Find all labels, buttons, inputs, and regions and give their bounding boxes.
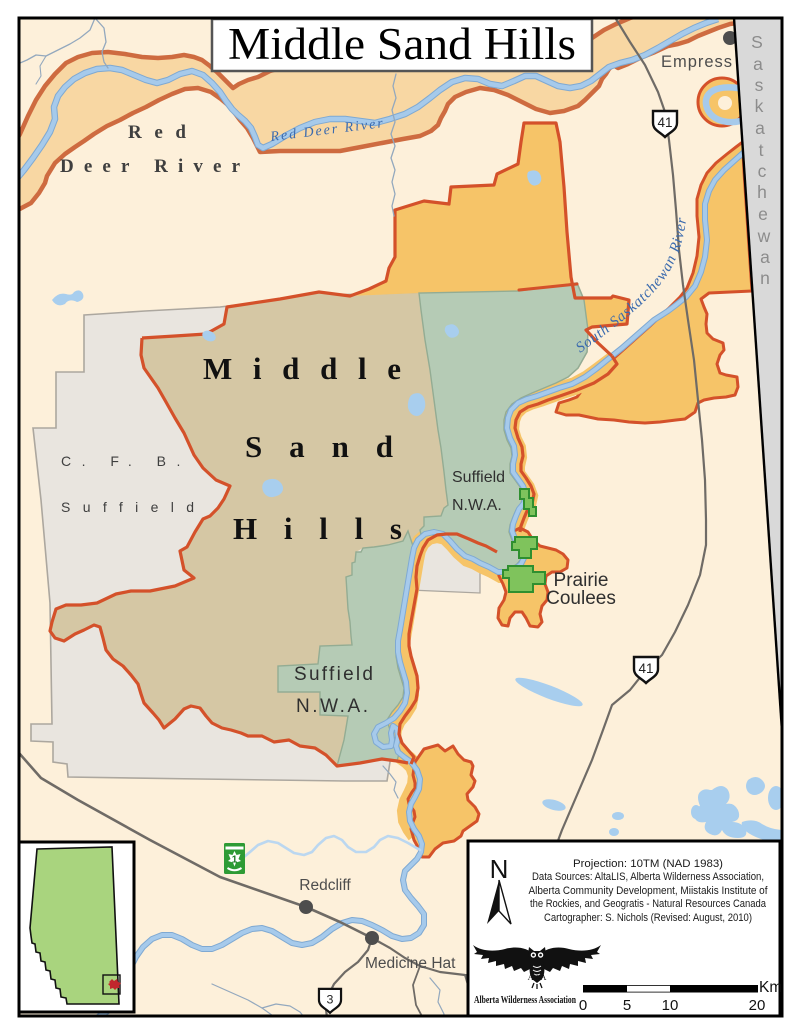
svg-text:the Rockies, and Geogratis - N: the Rockies, and Geogratis - Natural Res… xyxy=(530,898,767,910)
svg-text:Cartographer: S. Nichols (Revi: Cartographer: S. Nichols (Revised: Augus… xyxy=(544,912,752,924)
svg-text:Alberta Wilderness Association: Alberta Wilderness Association xyxy=(474,995,576,1006)
svg-text:Km: Km xyxy=(759,979,782,996)
svg-text:a: a xyxy=(755,118,765,138)
svg-text:w: w xyxy=(757,226,771,246)
svg-text:N.W.A.: N.W.A. xyxy=(296,696,368,717)
svg-text:n: n xyxy=(760,268,770,288)
svg-text:N: N xyxy=(490,854,509,884)
svg-text:20: 20 xyxy=(749,997,766,1014)
svg-text:h: h xyxy=(757,182,767,202)
svg-text:41: 41 xyxy=(657,115,672,130)
svg-text:S: S xyxy=(751,32,763,52)
svg-text:a: a xyxy=(753,54,763,74)
svg-text:Middle Sand Hills: Middle Sand Hills xyxy=(228,19,576,69)
svg-text:Medicine Hat: Medicine Hat xyxy=(365,955,456,972)
svg-text:Alberta Community Development,: Alberta Community Development, Miistakis… xyxy=(529,885,769,897)
svg-text:1: 1 xyxy=(232,855,238,866)
svg-text:C. F. B.: C. F. B. xyxy=(61,453,191,469)
svg-text:c: c xyxy=(758,161,767,181)
svg-text:10: 10 xyxy=(662,997,679,1014)
svg-text:a: a xyxy=(760,247,770,267)
svg-text:Redcliff: Redcliff xyxy=(299,877,351,894)
svg-text:e: e xyxy=(758,204,768,224)
svg-text:0: 0 xyxy=(579,997,587,1014)
svg-text:5: 5 xyxy=(623,997,631,1014)
svg-text:41: 41 xyxy=(638,661,653,676)
svg-text:3: 3 xyxy=(327,993,334,1007)
svg-text:t: t xyxy=(759,140,764,160)
svg-text:N.W.A.: N.W.A. xyxy=(452,497,502,514)
svg-text:Red: Red xyxy=(128,122,186,143)
svg-text:Suffield: Suffield xyxy=(452,469,505,486)
svg-text:Coulees: Coulees xyxy=(546,588,616,609)
svg-text:k: k xyxy=(755,96,764,116)
svg-text:Data Sources: AltaLIS, Alberta: Data Sources: AltaLIS, Alberta Wildernes… xyxy=(532,871,764,883)
svg-text:AWA: AWA xyxy=(528,972,548,982)
svg-text:s: s xyxy=(755,75,764,95)
svg-text:Projection: 10TM (NAD 1983): Projection: 10TM (NAD 1983) xyxy=(573,858,723,870)
svg-text:Empress: Empress xyxy=(661,53,732,71)
